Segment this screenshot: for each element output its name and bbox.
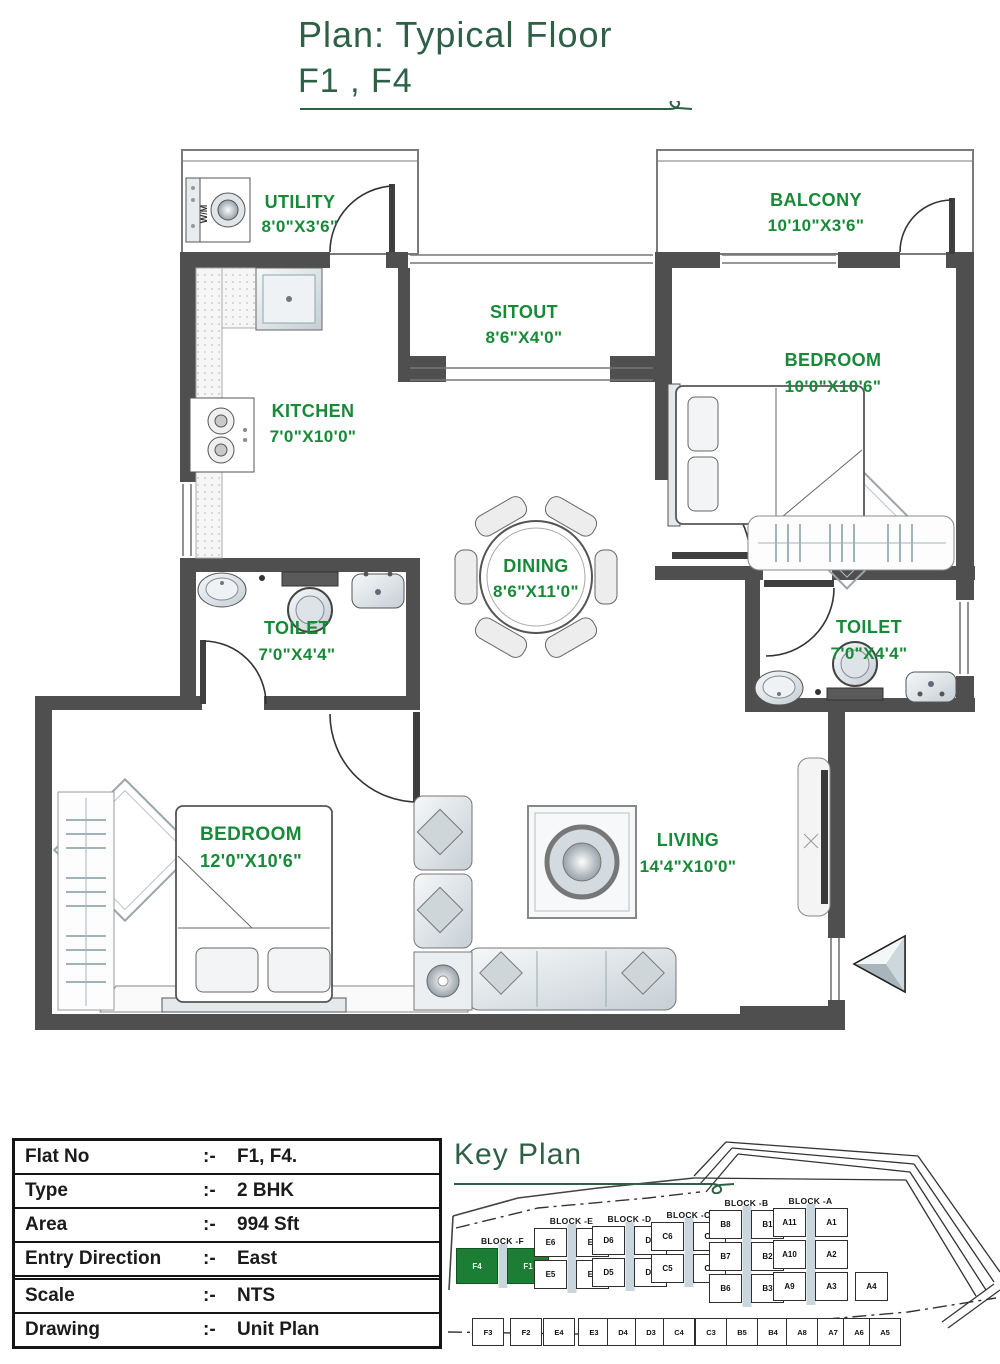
bedroom2-bed-icon xyxy=(54,779,468,1012)
keyplan-unit-a5: A5 xyxy=(869,1318,901,1346)
room-label-bedroom2: BEDROOM xyxy=(200,824,302,845)
room-label-balcony: BALCONY xyxy=(770,190,862,210)
info-row-type: Type:-2 BHK xyxy=(15,1175,439,1209)
room-dims-bedroom1: 10'0"X10'6" xyxy=(785,377,882,396)
floor-plan-drawing: W/M xyxy=(0,0,1000,1120)
entry-arrow-icon xyxy=(854,936,905,992)
room-label-bedroom1: BEDROOM xyxy=(785,350,882,370)
washing-machine-icon xyxy=(186,178,250,242)
room-label-dining: DINING xyxy=(503,556,568,576)
room-label-toilet1: TOILET xyxy=(264,618,330,638)
room-label-toilet2: TOILET xyxy=(836,617,902,637)
info-row-area: Area:-994 Sft xyxy=(15,1209,439,1243)
tv-unit-icon xyxy=(798,758,830,916)
room-dims-kitchen: 7'0"X10'0" xyxy=(270,427,357,446)
title-underline xyxy=(298,101,698,117)
keyplan-unit-c4: C4 xyxy=(663,1318,695,1346)
keyplan-unit-a10: A10 xyxy=(773,1240,806,1269)
room-label-utility: UTILITY xyxy=(265,192,336,212)
title-line-2: F1 , F4 xyxy=(298,62,698,101)
title-line-1: Plan: Typical Floor xyxy=(298,14,698,56)
keyplan-unit-a11: A11 xyxy=(773,1208,806,1237)
key-plan: Key Plan BLOCK -F F4F1 BLOCK -E E6E1E5E2… xyxy=(448,1132,1000,1364)
bedroom2-wardrobe-icon xyxy=(58,792,114,1010)
page-title: Plan: Typical Floor F1 , F4 xyxy=(298,14,698,122)
keyplan-unit-b4: B4 xyxy=(757,1318,789,1346)
bedroom1-wardrobe-icon xyxy=(748,516,954,570)
room-label-living: LIVING xyxy=(657,830,719,850)
keyplan-unit-e3: E3 xyxy=(578,1318,610,1346)
room-dims-balcony: 10'10"X3'6" xyxy=(768,216,865,235)
keyplan-unit-c3: C3 xyxy=(695,1318,727,1346)
keyplan-unit-a3: A3 xyxy=(815,1272,848,1301)
keyplan-unit-b6: B6 xyxy=(709,1274,742,1303)
keyplan-unit-f4: F4 xyxy=(456,1248,498,1284)
keyplan-unit-e6: E6 xyxy=(534,1228,567,1257)
keyplan-block-a: BLOCK -A A11A1A10A2A9A3A4 xyxy=(773,1196,848,1301)
keyplan-unit-f2: F2 xyxy=(510,1318,542,1346)
dining-set-icon xyxy=(455,493,617,660)
keyplan-unit-a2: A2 xyxy=(815,1240,848,1269)
keyplan-unit-a8: A8 xyxy=(786,1318,818,1346)
keyplan-unit-c6: C6 xyxy=(651,1222,684,1251)
keyplan-unit-c5: C5 xyxy=(651,1254,684,1283)
room-dims-living: 14'4"X10'0" xyxy=(640,857,737,876)
keyplan-unit-a1: A1 xyxy=(815,1208,848,1237)
keyplan-unit-d5: D5 xyxy=(592,1258,625,1287)
info-row-drawing: Drawing:-Unit Plan xyxy=(15,1314,439,1346)
key-plan-underline xyxy=(454,1178,754,1194)
info-table: Flat No:-F1, F4.Type:-2 BHKArea:-994 Sft… xyxy=(12,1138,442,1349)
keyplan-unit-e4: E4 xyxy=(543,1318,575,1346)
room-label-kitchen: KITCHEN xyxy=(272,401,355,421)
room-dims-bedroom2: 12'0"X10'6" xyxy=(200,851,302,871)
keyplan-unit-a9: A9 xyxy=(773,1272,806,1301)
room-dims-dining: 8'6"X11'0" xyxy=(493,582,579,601)
info-row-entry-direction: Entry Direction:-East xyxy=(15,1243,439,1280)
keyplan-unit-b5: B5 xyxy=(726,1318,758,1346)
room-dims-toilet1: 7'0"X4'4" xyxy=(259,645,336,664)
stove-icon xyxy=(190,398,254,472)
living-rug-icon xyxy=(528,806,636,918)
key-plan-title: Key Plan xyxy=(454,1138,582,1172)
keyplan-unit-e5: E5 xyxy=(534,1260,567,1289)
floor-plan-sheet: Plan: Typical Floor F1 , F4 xyxy=(0,0,1000,1364)
washing-machine-label: W/M xyxy=(199,205,209,224)
room-dims-toilet2: 7'0"X4'4" xyxy=(831,644,908,663)
keyplan-unit-b8: B8 xyxy=(709,1210,742,1239)
room-label-sitout: SITOUT xyxy=(490,302,558,322)
keyplan-unit-f3: F3 xyxy=(472,1318,504,1346)
info-row-flat-no: Flat No:-F1, F4. xyxy=(15,1141,439,1175)
keyplan-unit-d6: D6 xyxy=(592,1226,625,1255)
keyplan-unit-b7: B7 xyxy=(709,1242,742,1271)
keyplan-unit-a4: A4 xyxy=(855,1272,888,1301)
room-dims-sitout: 8'6"X4'0" xyxy=(486,328,563,347)
info-row-scale: Scale:-NTS xyxy=(15,1280,439,1314)
room-dims-utility: 8'0"X3'6" xyxy=(262,217,339,236)
